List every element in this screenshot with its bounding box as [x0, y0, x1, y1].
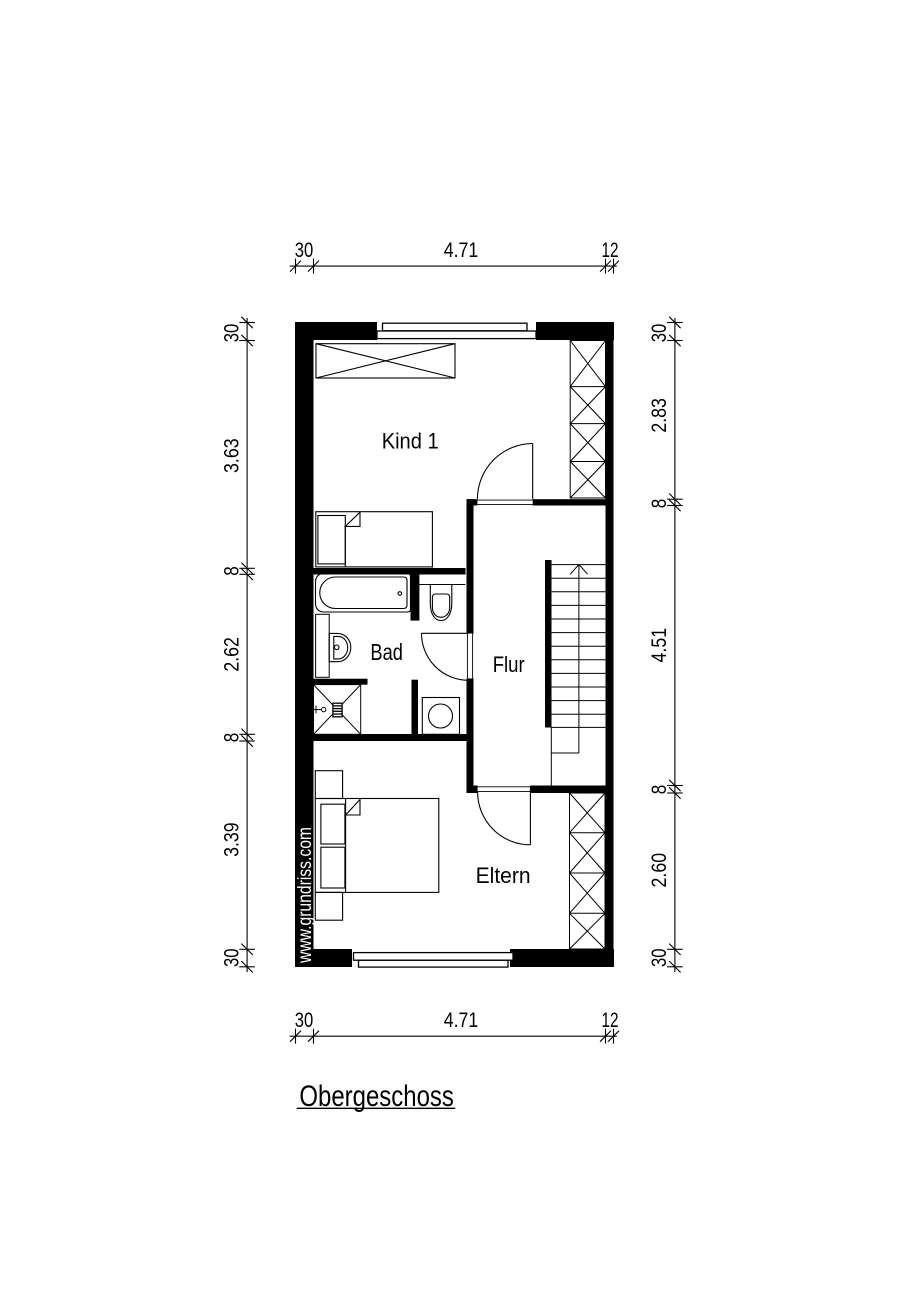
svg-text:30: 30	[648, 948, 671, 967]
svg-text:30: 30	[221, 948, 244, 967]
svg-text:Bad: Bad	[370, 639, 403, 665]
svg-text:30: 30	[221, 324, 244, 343]
svg-text:Kind 1: Kind 1	[382, 429, 439, 454]
svg-text:8: 8	[648, 785, 671, 795]
svg-text:30: 30	[295, 1009, 314, 1032]
svg-text:12: 12	[602, 239, 619, 262]
svg-text:4.71: 4.71	[444, 239, 479, 262]
svg-text:8: 8	[648, 499, 671, 509]
svg-text:www.grundriss.com: www.grundriss.com	[295, 827, 316, 964]
svg-text:2.62: 2.62	[221, 637, 244, 672]
svg-text:3.39: 3.39	[221, 822, 244, 857]
svg-text:4.51: 4.51	[648, 628, 671, 663]
svg-text:8: 8	[221, 566, 244, 576]
svg-text:30: 30	[648, 324, 671, 343]
svg-text:4.71: 4.71	[444, 1009, 479, 1032]
svg-text:Eltern: Eltern	[476, 863, 531, 888]
svg-text:2.60: 2.60	[648, 853, 671, 888]
svg-text:8: 8	[221, 733, 244, 743]
svg-text:12: 12	[602, 1009, 619, 1032]
svg-text:Flur: Flur	[493, 652, 525, 677]
svg-text:2.83: 2.83	[648, 398, 671, 433]
svg-text:30: 30	[295, 239, 314, 262]
svg-text:3.63: 3.63	[221, 438, 244, 473]
